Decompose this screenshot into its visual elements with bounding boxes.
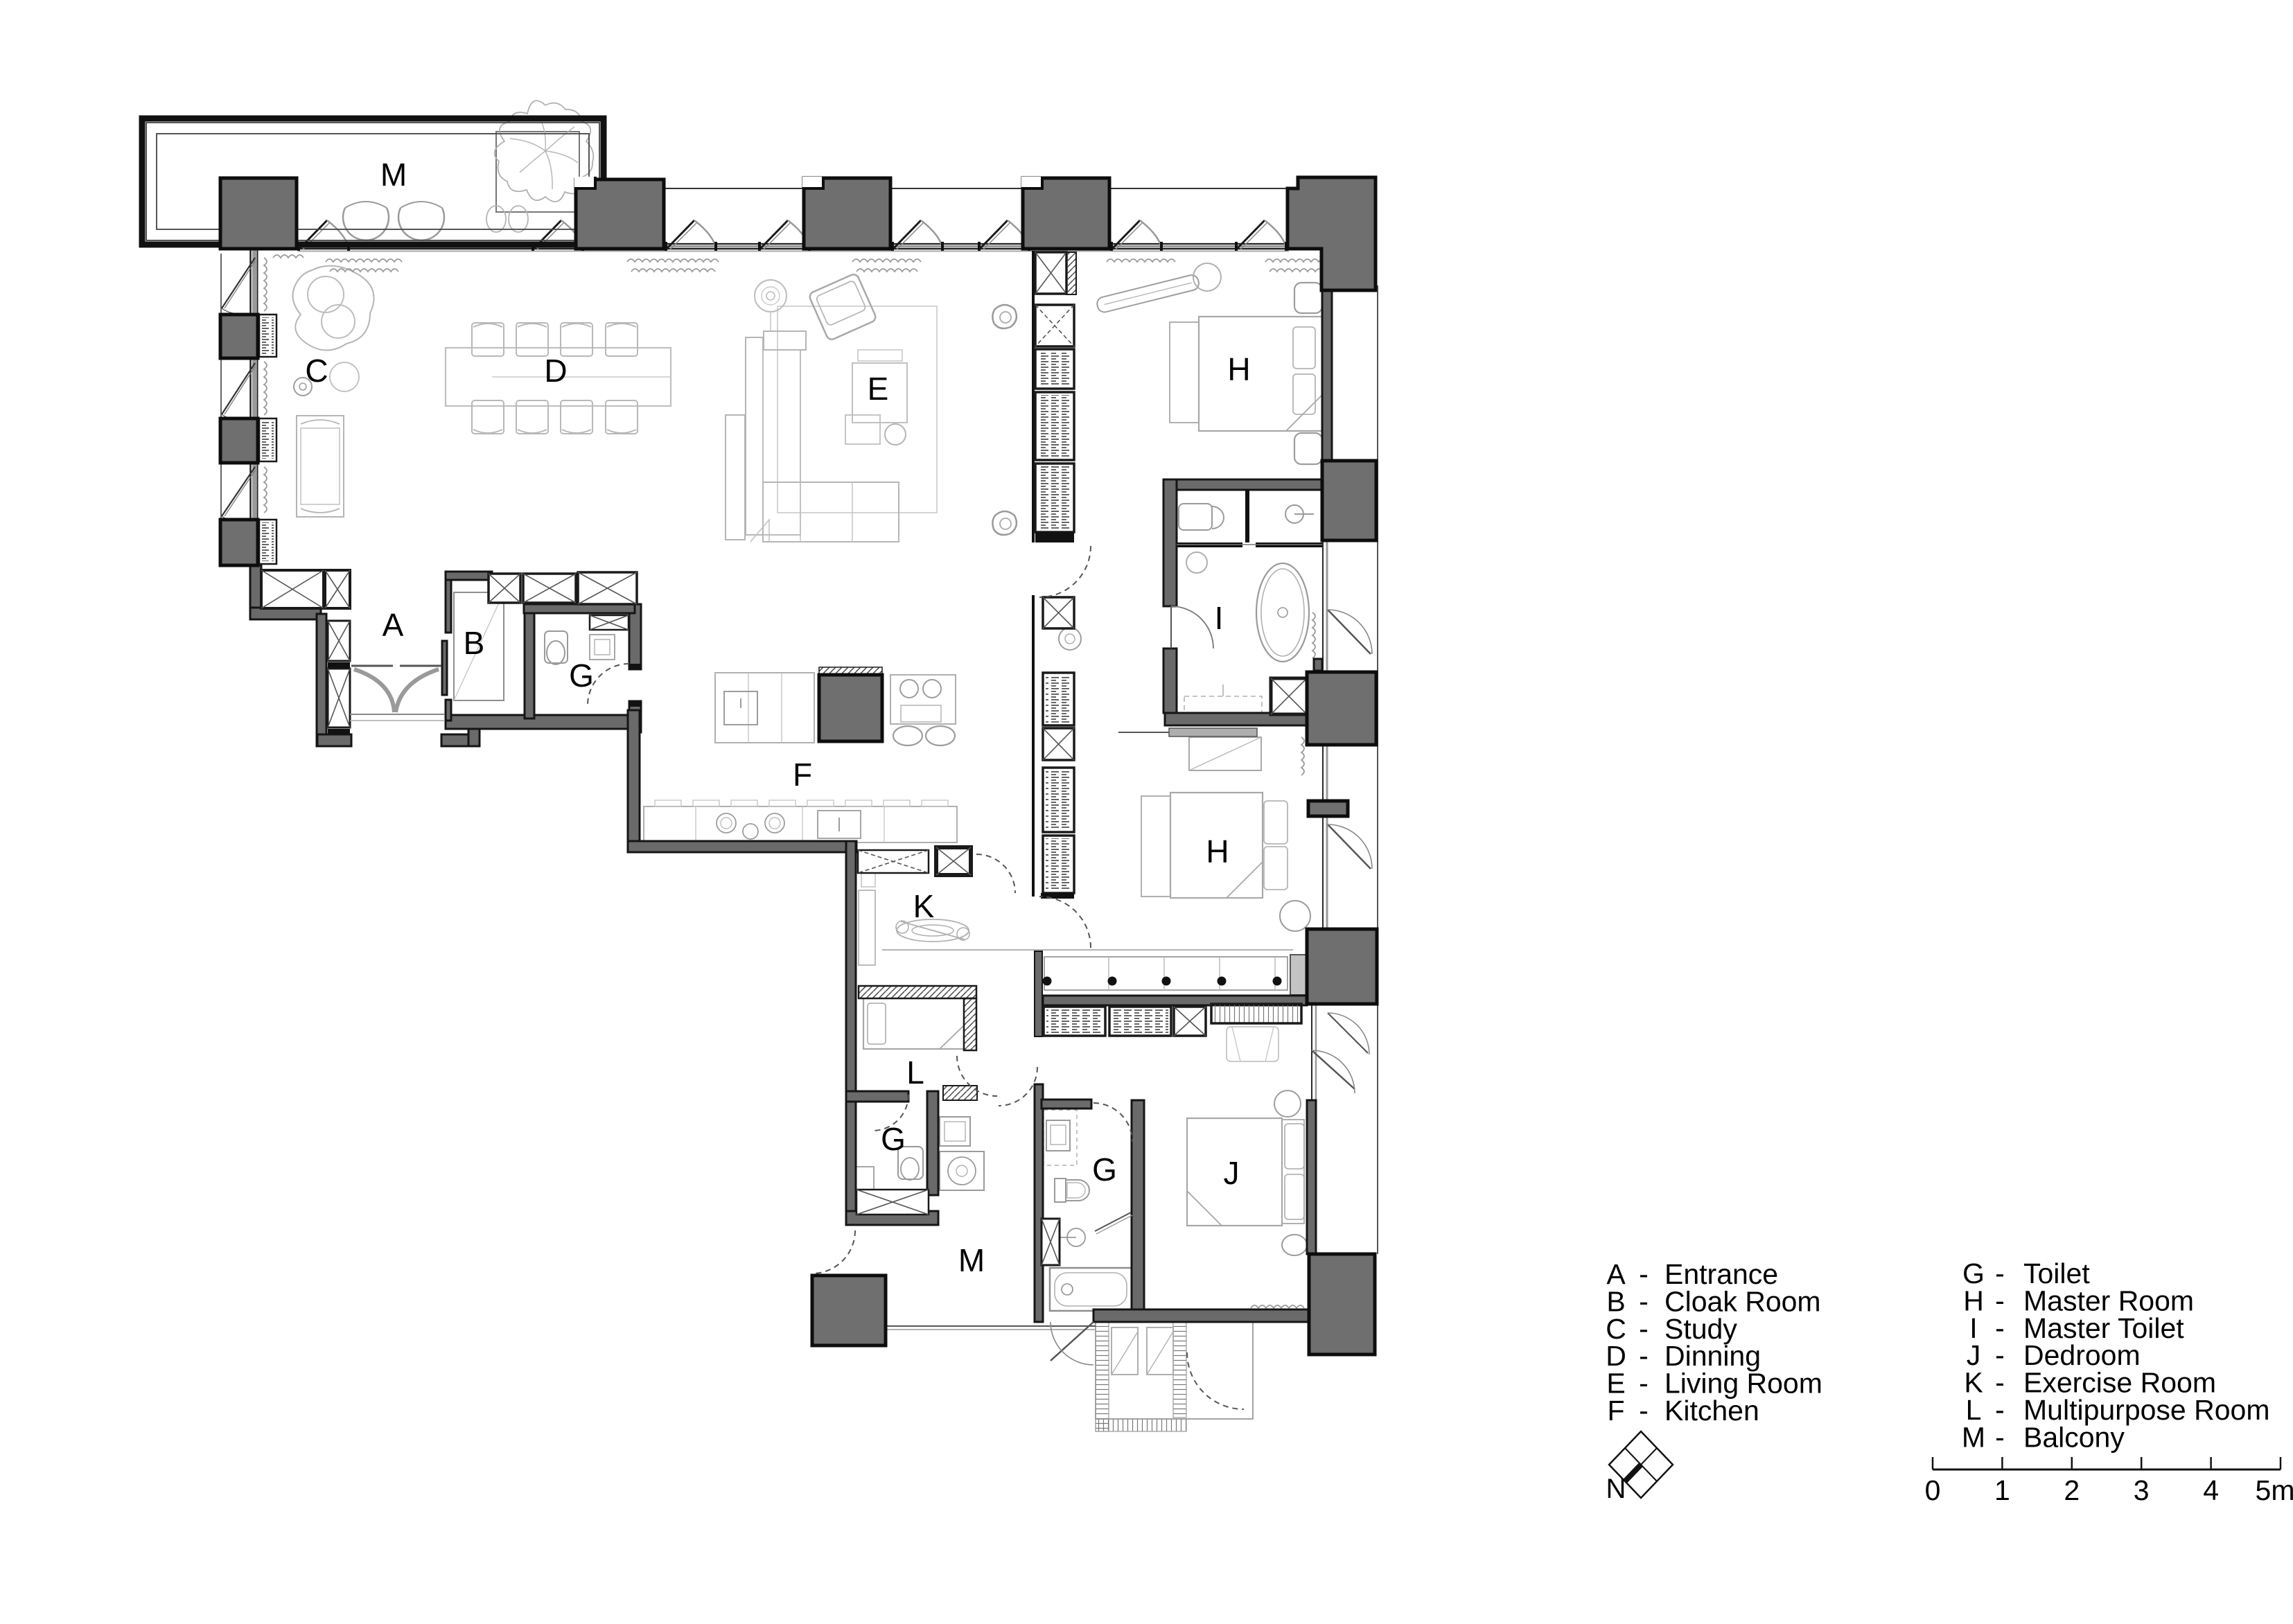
- svg-text:G: G: [881, 1121, 906, 1157]
- svg-text:N: N: [1606, 1474, 1626, 1504]
- svg-text:G: G: [1092, 1151, 1117, 1188]
- svg-text:H: H: [1206, 833, 1229, 870]
- svg-text:2: 2: [2064, 1474, 2080, 1506]
- svg-text:B: B: [464, 625, 485, 661]
- svg-text:F: F: [1607, 1395, 1624, 1427]
- svg-text:M: M: [380, 157, 407, 193]
- svg-text:3: 3: [2134, 1474, 2150, 1506]
- svg-text:1: 1: [1994, 1474, 2010, 1506]
- svg-text:H: H: [1227, 351, 1250, 387]
- svg-text:E: E: [868, 371, 889, 407]
- svg-text:-: -: [1995, 1421, 2005, 1453]
- svg-text:M: M: [1962, 1421, 1985, 1453]
- svg-text:F: F: [793, 757, 812, 793]
- svg-text:M: M: [958, 1242, 985, 1278]
- svg-text:I: I: [1215, 600, 1224, 636]
- svg-text:Balcony: Balcony: [2023, 1421, 2125, 1453]
- svg-text:A: A: [383, 607, 404, 643]
- svg-text:L: L: [906, 1054, 924, 1091]
- svg-text:D: D: [544, 353, 567, 389]
- svg-text:0: 0: [1925, 1474, 1941, 1506]
- svg-text:C: C: [305, 353, 328, 389]
- svg-text:4: 4: [2203, 1474, 2219, 1506]
- svg-text:G: G: [569, 657, 594, 694]
- svg-text:-: -: [1639, 1395, 1649, 1427]
- svg-text:K: K: [913, 888, 935, 924]
- svg-text:5m: 5m: [2256, 1474, 2293, 1506]
- svg-text:Kitchen: Kitchen: [1664, 1395, 1759, 1427]
- svg-text:J: J: [1224, 1155, 1240, 1191]
